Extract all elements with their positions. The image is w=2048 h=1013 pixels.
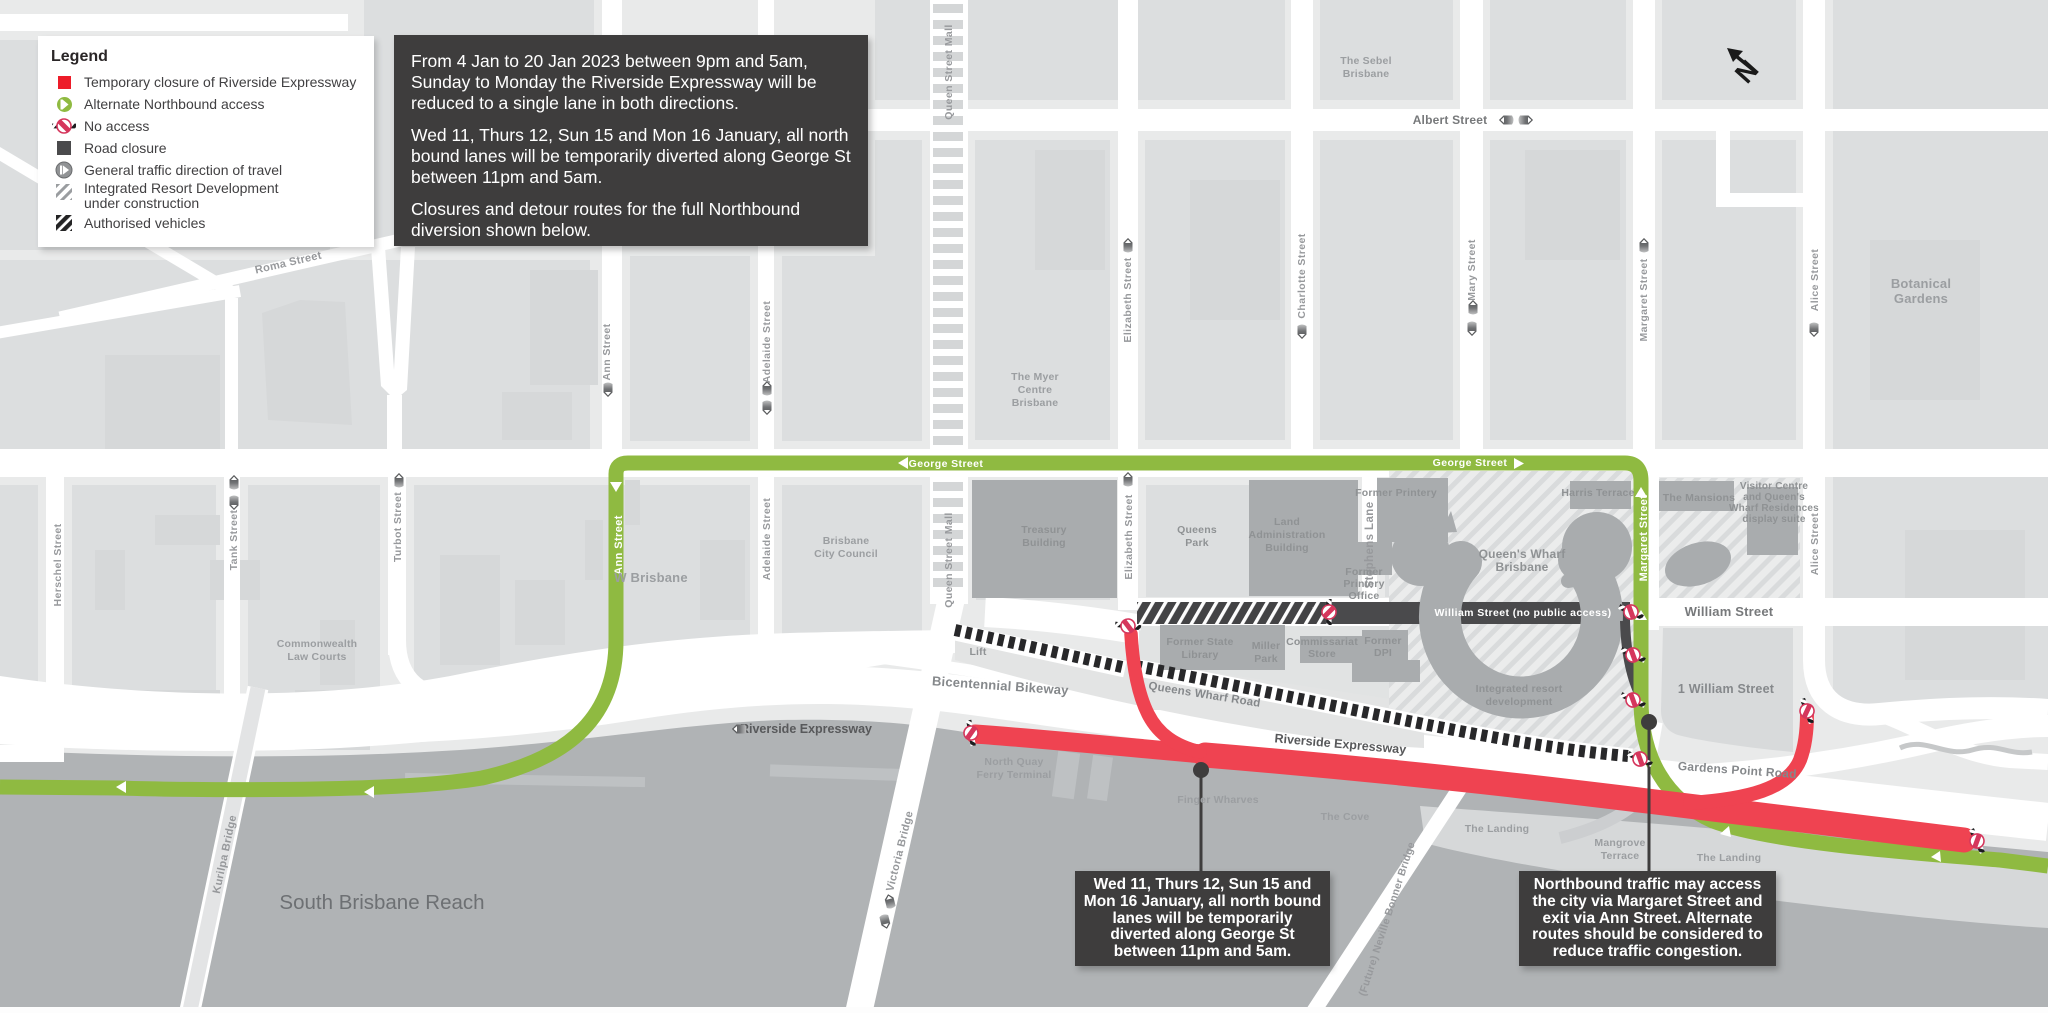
- svg-text:Land: Land: [1274, 516, 1300, 528]
- svg-text:Queen Street Mall: Queen Street Mall: [943, 512, 955, 608]
- svg-text:The Landing: The Landing: [1697, 852, 1762, 864]
- svg-text:Visitor Centre: Visitor Centre: [1740, 481, 1808, 492]
- svg-text:Store: Store: [1308, 648, 1336, 660]
- svg-text:Tank Street: Tank Street: [228, 509, 240, 570]
- svg-text:The Mansions: The Mansions: [1663, 492, 1735, 504]
- svg-text:Commissariat: Commissariat: [1286, 636, 1358, 648]
- svg-text:and Queen's: and Queen's: [1743, 492, 1805, 503]
- svg-text:Herschel Street: Herschel Street: [52, 523, 64, 606]
- svg-text:Margaret Street: Margaret Street: [1638, 258, 1650, 341]
- svg-text:W Brisbane: W Brisbane: [614, 570, 688, 585]
- svg-text:Former Printery: Former Printery: [1355, 487, 1437, 499]
- svg-text:Elizabeth Street: Elizabeth Street: [1122, 257, 1134, 342]
- svg-text:The Myer: The Myer: [1011, 371, 1059, 383]
- svg-text:Mangrove: Mangrove: [1594, 837, 1645, 849]
- svg-text:Charlotte Street: Charlotte Street: [1296, 233, 1308, 318]
- svg-text:George Street: George Street: [1433, 457, 1508, 469]
- svg-text:Mary Street: Mary Street: [1466, 239, 1478, 301]
- svg-text:Administration: Administration: [1249, 529, 1326, 541]
- svg-text:Albert Street: Albert Street: [1413, 113, 1488, 127]
- svg-text:South Brisbane Reach: South Brisbane Reach: [279, 891, 484, 914]
- svg-text:Former: Former: [1364, 635, 1401, 647]
- svg-text:Adelaide Street: Adelaide Street: [761, 301, 773, 384]
- svg-text:DPI: DPI: [1374, 647, 1392, 659]
- svg-text:George Street: George Street: [909, 458, 984, 470]
- svg-text:Terrace: Terrace: [1601, 850, 1640, 862]
- svg-text:Building: Building: [1265, 542, 1309, 554]
- svg-text:Finger Wharves: Finger Wharves: [1177, 794, 1259, 806]
- svg-text:Brisbane: Brisbane: [1012, 397, 1059, 409]
- svg-text:The Sebel: The Sebel: [1340, 55, 1391, 67]
- svg-text:Harris Terrace: Harris Terrace: [1561, 487, 1634, 499]
- svg-text:Ferry Terminal: Ferry Terminal: [977, 769, 1052, 781]
- svg-text:Botanical: Botanical: [1891, 276, 1951, 291]
- svg-text:Law Courts: Law Courts: [287, 651, 346, 663]
- svg-text:Brisbane: Brisbane: [1496, 560, 1549, 574]
- svg-text:display suite: display suite: [1742, 514, 1805, 525]
- svg-text:William Street (no public acce: William Street (no public access): [1434, 607, 1611, 619]
- svg-text:Brisbane: Brisbane: [1343, 68, 1390, 80]
- svg-text:North Quay: North Quay: [984, 756, 1043, 768]
- svg-text:Queens: Queens: [1177, 524, 1217, 536]
- svg-text:Building: Building: [1022, 537, 1066, 549]
- svg-text:Former: Former: [1345, 566, 1382, 578]
- svg-text:development: development: [1486, 696, 1553, 708]
- svg-text:Printery: Printery: [1343, 578, 1384, 590]
- svg-text:Elizabeth Street: Elizabeth Street: [1123, 494, 1135, 579]
- svg-text:Office: Office: [1349, 590, 1380, 602]
- svg-text:Park: Park: [1254, 653, 1278, 665]
- svg-text:Queen Street Mall: Queen Street Mall: [943, 24, 955, 120]
- svg-text:Integrated resort: Integrated resort: [1476, 683, 1563, 695]
- svg-text:Park: Park: [1185, 537, 1209, 549]
- svg-text:Library: Library: [1182, 649, 1219, 661]
- svg-text:Lift: Lift: [969, 646, 986, 658]
- svg-text:Centre: Centre: [1018, 384, 1052, 396]
- svg-text:Ann Street: Ann Street: [601, 323, 613, 380]
- svg-text:Adelaide Street: Adelaide Street: [761, 498, 773, 581]
- svg-text:Wharf Residences: Wharf Residences: [1729, 503, 1819, 514]
- svg-text:City Council: City Council: [814, 548, 878, 560]
- svg-text:Miller: Miller: [1252, 640, 1281, 652]
- svg-text:Former State: Former State: [1166, 636, 1233, 648]
- svg-text:Ann Street: Ann Street: [613, 515, 625, 575]
- svg-text:The Cove: The Cove: [1321, 811, 1370, 823]
- svg-text:Alice Street: Alice Street: [1809, 249, 1821, 312]
- svg-text:Queen's Wharf: Queen's Wharf: [1479, 547, 1567, 561]
- svg-text:Gardens: Gardens: [1894, 291, 1948, 306]
- svg-text:1 William Street: 1 William Street: [1678, 682, 1775, 696]
- svg-text:The Landing: The Landing: [1465, 823, 1530, 835]
- svg-text:Turbot Street: Turbot Street: [392, 492, 404, 562]
- svg-text:Margaret Street: Margaret Street: [1638, 495, 1650, 582]
- svg-text:Brisbane: Brisbane: [823, 535, 870, 547]
- svg-text:Commonwealth: Commonwealth: [277, 638, 358, 650]
- svg-text:Alice Street: Alice Street: [1809, 513, 1821, 576]
- svg-text:Treasury: Treasury: [1021, 524, 1066, 536]
- svg-text:Riverside Expressway: Riverside Expressway: [740, 722, 872, 736]
- svg-text:William Street: William Street: [1685, 604, 1774, 619]
